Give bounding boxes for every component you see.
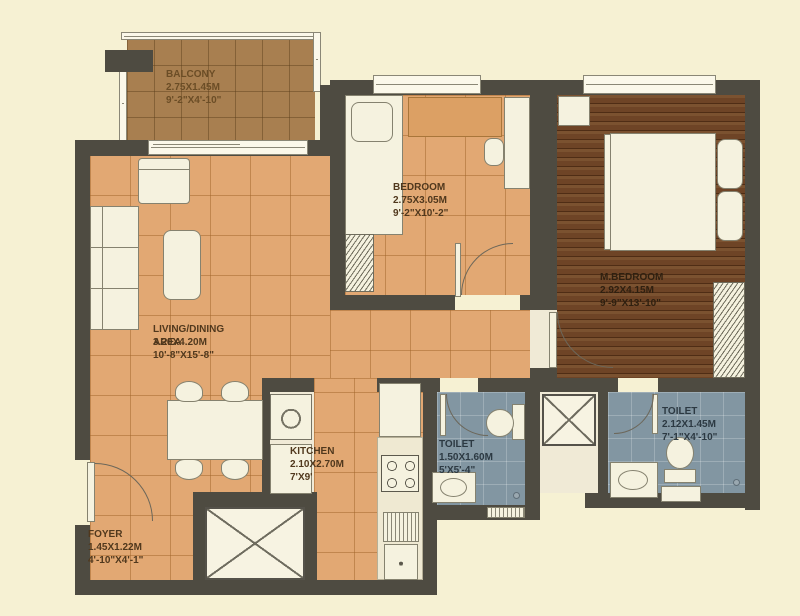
- balcony-parapet-top: [121, 32, 321, 40]
- dining-chair: [221, 381, 249, 402]
- pillow: [351, 102, 393, 142]
- room-dim-ft: 9'-9"X13'-10": [600, 297, 661, 310]
- room-dim-ft: 9'-2"X10'-2": [393, 207, 448, 220]
- passage-floor: [330, 310, 530, 378]
- master-bedroom-door-leaf: [549, 312, 557, 368]
- armchair: [138, 158, 190, 204]
- dining-chair: [175, 459, 203, 480]
- gas-hob: [381, 455, 419, 492]
- room-dim-m: 2.75X1.45M: [166, 81, 220, 94]
- desk-chair: [484, 138, 504, 166]
- wall-segment: [193, 507, 205, 595]
- pillow: [717, 191, 743, 241]
- bedroom-wardrobe: [345, 234, 374, 292]
- room-label-balcony: BALCONY 2.75X1.45M 9'-2"X4'-10": [166, 55, 266, 107]
- room-dim-ft: 7'X9': [290, 471, 313, 484]
- wall-right: [745, 80, 760, 510]
- wall-living-bedroom: [330, 95, 345, 310]
- washbasin: [618, 470, 648, 490]
- double-bed: [610, 133, 716, 251]
- nightstand: [558, 96, 590, 126]
- sink-drainboard: [383, 512, 419, 542]
- room-dim-ft: 4'-10"X4'-1": [88, 554, 143, 567]
- wall-segment: [262, 392, 270, 492]
- room-label-kitchen: KITCHEN 2.10X2.70M 7'X9': [290, 432, 375, 484]
- sofa: [90, 206, 139, 330]
- wall-segment: [525, 392, 540, 520]
- wc-tank: [664, 469, 696, 483]
- wall-segment: [193, 492, 317, 507]
- room-label-toilet-master: TOILET 2.12X1.45M 7'-1"X4'-10": [662, 392, 742, 444]
- wall-segment: [423, 378, 440, 392]
- room-dim-m: 1.45X1.22M: [88, 541, 142, 554]
- entrance-door-leaf: [87, 462, 95, 522]
- room-label-foyer: FOYER 1.45X1.22M 4'-10"X4'-1": [88, 515, 173, 567]
- balcony-parapet-right: [313, 32, 321, 92]
- wall-segment: [105, 50, 153, 72]
- wall-bedroom-master: [530, 95, 557, 310]
- duct-shaft: [205, 507, 305, 580]
- room-label-bedroom: BEDROOM 2.75X3.05M 9'-2"X10'-2": [393, 168, 493, 220]
- master-wardrobe: [713, 282, 745, 378]
- wall-left-upper: [75, 140, 90, 460]
- wall-bottom: [75, 580, 435, 595]
- pillow: [717, 139, 743, 189]
- dining-chair: [221, 459, 249, 480]
- washbasin: [440, 478, 467, 497]
- room-label-toilet-common: TOILET 1.50X1.60M 5'X5'-4": [439, 425, 519, 477]
- dresser: [408, 97, 502, 137]
- bedroom-window: [373, 75, 481, 94]
- room-label-living-dining: LIVING/DINING AREA 3.20X4.20M 10'-8"X15'…: [153, 310, 245, 362]
- study-desk: [504, 97, 530, 189]
- coffee-table: [163, 230, 201, 300]
- kitchen-cabinet: [379, 383, 421, 437]
- room-dim-m: 2.92X4.15M: [600, 284, 654, 297]
- kitchen-sink: [384, 544, 418, 580]
- balcony-sliding-door: [148, 140, 308, 155]
- wall-segment: [262, 378, 314, 392]
- room-name: TOILET: [439, 438, 474, 451]
- room-dim-m: 1.50X1.60M: [439, 451, 493, 464]
- floor-drain: [513, 492, 520, 499]
- balcony-parapet-left: [119, 70, 127, 142]
- room-dim-m: 3.20X4.20M: [153, 336, 207, 349]
- room-dim-ft: 7'-1"X4'-10": [662, 431, 717, 444]
- dining-chair: [175, 381, 203, 402]
- wall-segment: [305, 507, 317, 595]
- room-dim-ft: 10'-8"X15'-8": [153, 349, 214, 362]
- room-name: KITCHEN: [290, 445, 334, 458]
- room-name: M.BEDROOM: [600, 271, 663, 284]
- wall-segment: [330, 295, 455, 310]
- floor-drain: [733, 479, 740, 486]
- master-bedroom-window: [583, 75, 716, 94]
- dining-table: [167, 400, 263, 460]
- bedroom-door-leaf: [455, 243, 461, 297]
- toilet-vent: [487, 507, 525, 518]
- room-dim-ft: 9'-2"X4'-10": [166, 94, 221, 107]
- wall-segment: [598, 392, 608, 493]
- room-name: TOILET: [662, 405, 697, 418]
- kitchen-entry-floor: [314, 378, 377, 392]
- room-name: BALCONY: [166, 68, 215, 81]
- room-dim-m: 2.12X1.45M: [662, 418, 716, 431]
- room-name: BEDROOM: [393, 181, 445, 194]
- room-label-master-bedroom: M.BEDROOM 2.92X4.15M 9'-9"X13'-10": [600, 258, 710, 310]
- floor-plan: BALCONY 2.75X1.45M 9'-2"X4'-10" BEDROOM …: [0, 0, 800, 616]
- wall-segment: [520, 295, 530, 310]
- duct-shaft: [542, 394, 596, 446]
- wc-platform: [661, 486, 701, 502]
- room-dim-ft: 5'X5'-4": [439, 464, 475, 477]
- wall-segment: [658, 378, 760, 392]
- wall-segment: [478, 378, 618, 392]
- room-dim-m: 2.75X3.05M: [393, 194, 447, 207]
- room-dim-m: 2.10X2.70M: [290, 458, 344, 471]
- room-name: FOYER: [88, 528, 122, 541]
